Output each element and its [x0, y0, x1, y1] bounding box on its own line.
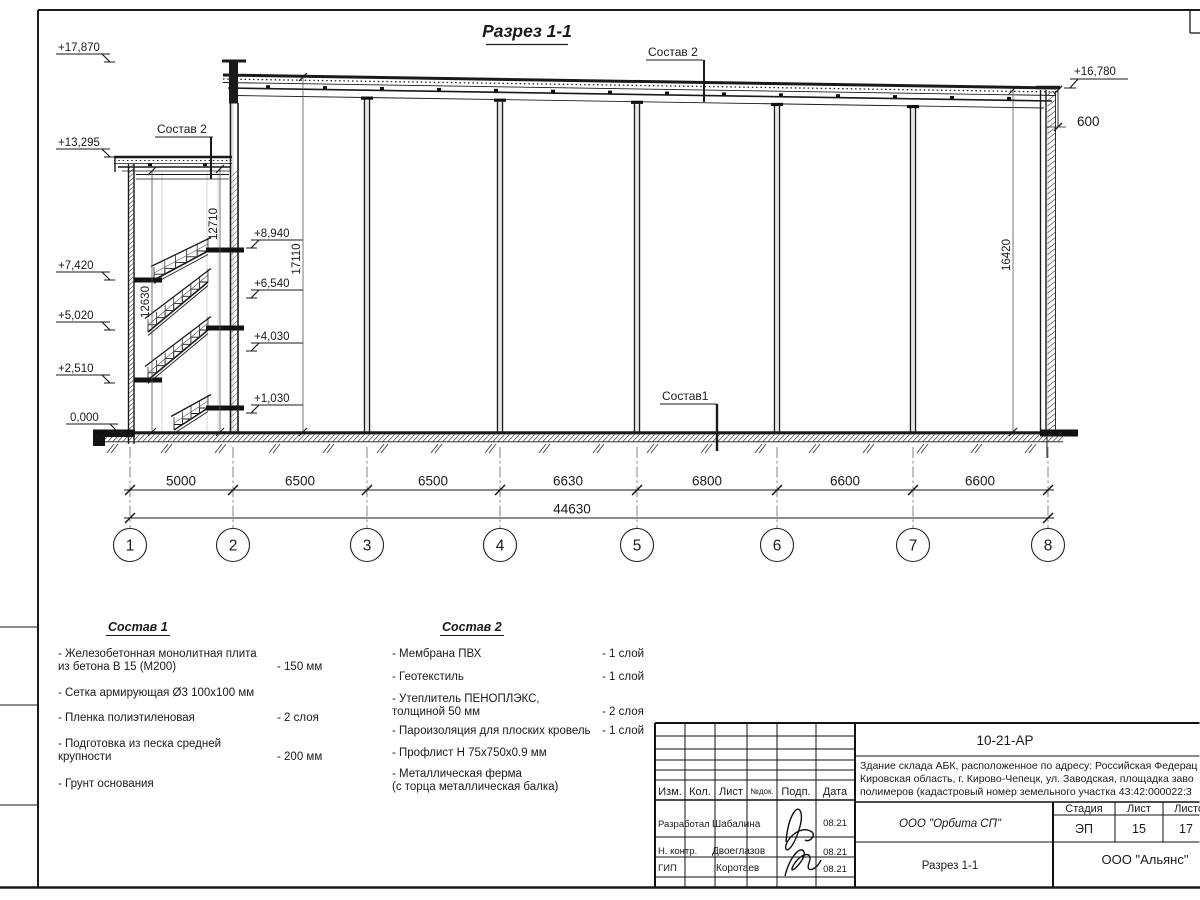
label-canopy-sostav2: Состав 2	[155, 122, 213, 179]
soil-symbols	[107, 444, 1036, 453]
floor-slab-hatch	[92, 434, 1071, 443]
legend2-item-text: - Пароизоляция для плоских кровель	[392, 725, 591, 738]
elev-8940: +8,940	[254, 228, 290, 240]
signature-1	[786, 809, 814, 850]
floor-slab	[93, 430, 1078, 459]
legend2-item-value: - 1 слой	[602, 671, 644, 684]
tb-name-dvoeglazov: Двоеглазов	[712, 846, 765, 857]
drawing-sheet: Разрез 1-1	[0, 0, 1200, 900]
dim-5000: 5000	[166, 474, 196, 489]
elev-mark: +5,020	[56, 310, 115, 330]
legend2-item-text: - Утеплитель ПЕНОПЛЭКС, толщиной 50 мм	[392, 693, 540, 719]
legend2-item-text: - Металлическая ферма (с торца металличе…	[392, 768, 558, 794]
tb-address-line2: Кировская область, г. Кирово-Чепецк, ул.…	[860, 773, 1194, 785]
legend2-item-value: - 1 слой	[602, 725, 644, 738]
elev-4030: +4,030	[254, 331, 290, 343]
legend1-item-value: - 150 мм	[277, 661, 322, 674]
elev-1030: +1,030	[254, 393, 290, 405]
grid-bubble-3: 3	[363, 538, 372, 555]
grid-bubble-1: 1	[126, 538, 135, 555]
legend1-item-value: - 200 мм	[277, 751, 322, 764]
elev-mark: +6,540	[246, 278, 303, 298]
vdim-17110: 17110	[291, 243, 303, 274]
grid-bubble-2: 2	[229, 538, 238, 555]
dimension-chain: 5000 6500 6500 6630 6800 6600 6600 44630	[124, 474, 1054, 524]
legend1-item-value: - 2 слоя	[277, 712, 319, 725]
tb-header-data: Дата	[823, 786, 848, 798]
tb-sheets-value: 17	[1179, 822, 1193, 836]
elev-mark: +13,295	[56, 137, 115, 157]
grid-bubbles: 1 2 3 4 5 6 7 8	[114, 529, 1065, 562]
legend1-title: Состав 1	[106, 620, 170, 636]
elev-mark: 0,000	[66, 412, 126, 432]
legend2-item: - Металлическая ферма (с торца металличе…	[392, 768, 737, 794]
wall-grid2-parapet	[222, 61, 246, 433]
dim-labels: 5000 6500 6500 6630 6800 6600 6600 44630	[166, 474, 995, 517]
grid-bubble-5: 5	[633, 538, 642, 555]
elev-mark: +17,870	[56, 42, 115, 62]
elev-16780: +16,780	[1074, 66, 1116, 78]
legend1-item-text: - Грунт основания	[58, 778, 154, 791]
dim-total-44630: 44630	[553, 502, 591, 517]
legend1-item: - Грунт основания	[58, 778, 403, 791]
floor-sostav1-text: Состав1	[662, 389, 709, 403]
elev-17870: +17,870	[58, 42, 100, 54]
legend2-item-text: - Профлист Н 75х750х0.9 мм	[392, 747, 547, 760]
vertical-dimensions: 12630 12710 17110 16420	[140, 73, 1017, 436]
vdim-12710: 12710	[208, 208, 220, 240]
tb-doc-number: 10-21-АР	[976, 733, 1033, 748]
tb-sheet-label: Лист	[1127, 803, 1151, 815]
tb-header-ndok: №док.	[750, 787, 773, 796]
legend2-item-value: - 1 слой	[602, 648, 644, 661]
elev-mark: +4,030	[246, 331, 303, 351]
elevation-mark-right: +16,780	[1064, 66, 1128, 88]
dim-6600b: 6600	[965, 474, 995, 489]
dim-600: 600	[1046, 86, 1100, 131]
canopy-sostav2-text: Состав 2	[157, 122, 207, 136]
grid-bubble-4: 4	[496, 538, 505, 555]
tb-address-line1: Здание склада АБК, расположенное по адре…	[860, 760, 1197, 772]
tb-date-2: 08.21	[823, 847, 847, 858]
tb-role-gip: ГИП	[658, 863, 677, 874]
tb-org: ООО "Орбита СП"	[899, 818, 1002, 830]
tb-date-1: 08.21	[823, 818, 847, 829]
legend2-item: - Геотекстиль - 1 слой	[392, 671, 737, 684]
dim-6800: 6800	[692, 474, 722, 489]
legend1-item-text: - Подготовка из песка средней крупности	[58, 738, 221, 764]
elev-0000: 0,000	[70, 412, 99, 424]
elev-2510: +2,510	[58, 363, 94, 375]
elevation-marks-left: +17,870 +13,295 +7,420 +5,020 +2,510	[56, 42, 126, 432]
legend2-item: - Профлист Н 75х750х0.9 мм	[392, 747, 737, 760]
tb-sheet-value: 15	[1132, 822, 1146, 836]
grid-bubble-6: 6	[773, 538, 782, 555]
grid-bubble-7: 7	[909, 538, 918, 555]
legend1-item-text: - Сетка армирующая Ø3 100х100 мм	[58, 687, 254, 700]
roof-clips	[148, 85, 1011, 166]
canopy-roof	[114, 156, 232, 172]
legend2-item: - Утеплитель ПЕНОПЛЭКС, толщиной 50 мм -…	[392, 693, 737, 719]
tb-company: ООО "Альянс"	[1102, 852, 1189, 867]
legend2-item: - Пароизоляция для плоских кровель - 1 с…	[392, 725, 737, 738]
legend1-item: - Сетка армирующая Ø3 100х100 мм	[58, 687, 403, 700]
elev-13295: +13,295	[58, 137, 100, 149]
roof-sostav2-text: Состав 2	[648, 45, 698, 59]
tb-address-line3: полимеров (кадастровый номер земельного …	[860, 786, 1192, 798]
elev-5020: +5,020	[58, 310, 94, 322]
legend-sostav2: Состав 2 - Мембрана ПВХ - 1 слой - Геоте…	[392, 618, 737, 803]
stair-flights	[145, 238, 211, 434]
elev-mark: +7,420	[56, 260, 115, 280]
section-title: Разрез 1-1	[482, 21, 572, 45]
legend1-item: - Железобетонная монолитная плита из бет…	[58, 648, 403, 674]
columns	[361, 97, 919, 433]
tb-name-shabalina: Шабалина	[712, 818, 761, 830]
legend2-title: Состав 2	[440, 620, 504, 636]
tb-stage-label: Стадия	[1065, 803, 1103, 815]
dim-6630: 6630	[553, 474, 583, 489]
dim-600-text: 600	[1077, 114, 1100, 129]
section-title-text: Разрез 1-1	[482, 21, 572, 41]
dim-6500b: 6500	[418, 474, 448, 489]
legend2-item-value: - 2 слоя	[602, 706, 644, 719]
tb-name-korotaev: Коротаев	[716, 863, 759, 874]
label-roof-sostav2: Состав 2	[646, 45, 704, 102]
legend-sostav1: Состав 1 - Железобетонная монолитная пли…	[58, 618, 403, 803]
legend1-item: - Пленка полиэтиленовая - 2 слоя	[58, 712, 403, 725]
tb-date-3: 08.21	[823, 864, 847, 875]
tb-section-name: Разрез 1-1	[922, 860, 978, 872]
grid-bubble-8: 8	[1044, 538, 1053, 555]
dim-6500a: 6500	[285, 474, 315, 489]
tb-role-nkontr: Н. контр.	[658, 846, 697, 857]
dim-6600a: 6600	[830, 474, 860, 489]
vdim-16420: 16420	[1001, 239, 1013, 271]
tb-role-razrabotal: Разработал	[658, 819, 710, 830]
legend1-item-text: - Железобетонная монолитная плита из бет…	[58, 648, 257, 674]
legend2-item-text: - Мембрана ПВХ	[392, 648, 481, 661]
legend2-item-text: - Геотекстиль	[392, 671, 464, 684]
elev-mark: +1,030	[246, 393, 303, 413]
interior-grid-lines	[152, 98, 1048, 431]
elev-mark: +2,510	[56, 363, 115, 383]
elev-6540: +6,540	[254, 278, 290, 290]
legend1-item: - Подготовка из песка средней крупности …	[58, 738, 403, 764]
vdim-12630: 12630	[140, 286, 152, 318]
wall-grid8-hatch	[1045, 87, 1058, 444]
tb-stage-value: ЭП	[1075, 822, 1093, 836]
legend2-item: - Мембрана ПВХ - 1 слой	[392, 648, 737, 661]
elev-7420: +7,420	[58, 260, 94, 272]
legend1-item-text: - Пленка полиэтиленовая	[58, 712, 195, 725]
tb-sheets-label: Листов	[1174, 803, 1200, 815]
tb-header-podp: Подп.	[781, 786, 810, 798]
